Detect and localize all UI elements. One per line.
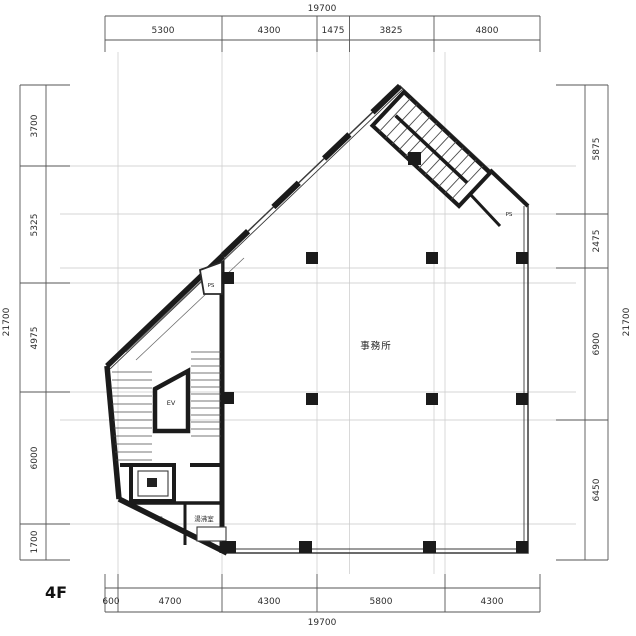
dimension-band-right: 21700 5875 2475 6900 6450 [556, 85, 632, 560]
column [306, 252, 318, 264]
column [299, 541, 312, 553]
pipe-shaft-upper [200, 262, 222, 294]
dimension-band-left: 21700 3700 5325 4975 6000 1700 [2, 85, 70, 560]
kitchenette-fixture [197, 527, 226, 541]
column [426, 252, 438, 264]
dim-bottom-total: 19700 [308, 618, 337, 628]
dim-top-seg-4: 3825 [380, 26, 403, 36]
dim-left-seg-2: 5325 [30, 214, 40, 237]
floor-plan-canvas: 19700 5300 4300 1475 3825 4800 600 4700 … [0, 0, 636, 636]
dim-right-total: 21700 [622, 307, 632, 336]
column [426, 393, 438, 405]
wc-fixture [147, 478, 157, 487]
dim-top-total: 19700 [308, 4, 337, 14]
dim-bottom-seg-5: 4300 [481, 597, 504, 607]
stair-landing-lines [126, 248, 244, 360]
elevator-label: EV [167, 399, 176, 407]
floor-plan-page: 19700 5300 4300 1475 3825 4800 600 4700 … [0, 0, 636, 636]
column [222, 541, 236, 553]
dim-bottom-seg-1: 600 [102, 597, 119, 607]
dim-right-seg-1: 5875 [592, 138, 602, 161]
column [516, 393, 528, 405]
ps-upper-label: PS [208, 283, 215, 289]
ps-lower-label: PS [155, 515, 163, 523]
column [423, 541, 436, 553]
dim-top-seg-5: 4800 [476, 26, 499, 36]
column [408, 152, 421, 165]
ps-corner-label: PS [506, 212, 513, 218]
dim-bottom-seg-4: 5800 [370, 597, 393, 607]
floor-label: 4F [45, 583, 67, 602]
dim-left-seg-1: 3700 [30, 114, 40, 137]
column [306, 393, 318, 405]
dim-left-total: 21700 [2, 307, 12, 336]
dim-right-seg-4: 6450 [592, 478, 602, 501]
dim-bottom-seg-2: 4700 [159, 597, 182, 607]
column [222, 392, 234, 404]
kitchenette-label: 湯沸室 [194, 514, 214, 523]
dim-top-seg-1: 5300 [152, 26, 175, 36]
dimension-band-bottom: 600 4700 4300 5800 4300 19700 [102, 574, 540, 628]
dim-right-seg-3: 6900 [592, 332, 602, 355]
column [516, 541, 528, 553]
dim-left-seg-4: 6000 [30, 446, 40, 469]
dim-bottom-seg-3: 4300 [258, 597, 281, 607]
dim-right-seg-2: 2475 [592, 230, 602, 253]
column [222, 272, 234, 284]
staircase-upper [373, 92, 491, 206]
column [516, 252, 528, 264]
office-label: 事務所 [360, 340, 392, 352]
dimension-band-top: 19700 5300 4300 1475 3825 4800 [105, 4, 540, 52]
dim-left-seg-3: 4975 [30, 327, 40, 350]
dim-left-seg-5: 1700 [30, 530, 40, 553]
dim-top-seg-2: 4300 [258, 26, 281, 36]
columns [222, 252, 528, 553]
dim-top-seg-3: 1475 [322, 26, 345, 36]
